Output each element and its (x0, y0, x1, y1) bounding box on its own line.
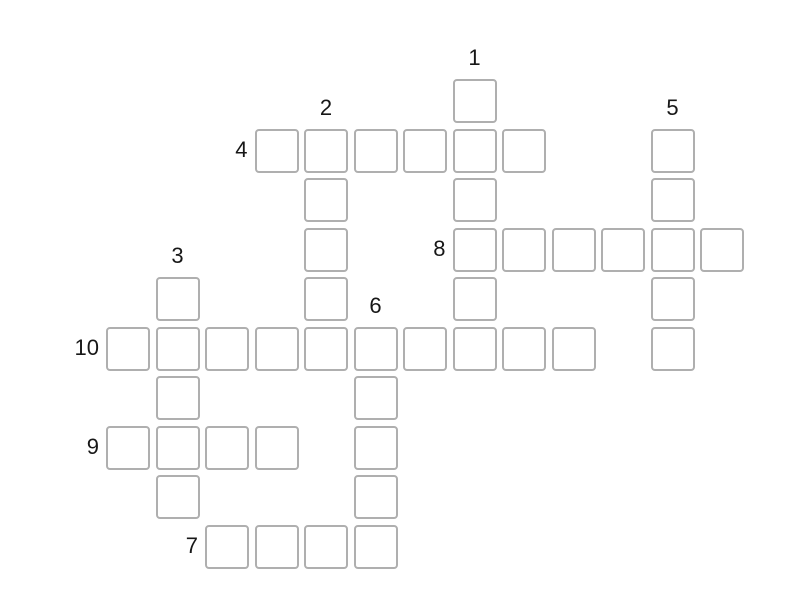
clue-number-label: 9 (59, 435, 99, 459)
crossword-cell[interactable] (453, 79, 497, 123)
crossword-cell[interactable] (304, 228, 348, 272)
crossword-cell[interactable] (354, 327, 398, 371)
crossword-cell[interactable] (156, 426, 200, 470)
crossword-cell[interactable] (502, 228, 546, 272)
crossword-cell[interactable] (403, 327, 447, 371)
crossword-cell[interactable] (651, 327, 695, 371)
crossword-cell[interactable] (304, 277, 348, 321)
crossword-cell[interactable] (453, 277, 497, 321)
crossword-cell[interactable] (502, 129, 546, 173)
crossword-cell[interactable] (651, 178, 695, 222)
crossword-cell[interactable] (304, 178, 348, 222)
clue-number-label: 6 (356, 294, 396, 318)
crossword-cell[interactable] (304, 129, 348, 173)
crossword-cell[interactable] (354, 525, 398, 569)
crossword-cell[interactable] (651, 228, 695, 272)
crossword-cell[interactable] (304, 327, 348, 371)
crossword-cell[interactable] (156, 475, 200, 519)
crossword-cell[interactable] (156, 376, 200, 420)
clue-number-label: 4 (208, 138, 248, 162)
crossword-cell[interactable] (106, 426, 150, 470)
crossword-cell[interactable] (205, 426, 249, 470)
crossword-cell[interactable] (255, 426, 299, 470)
crossword-cell[interactable] (700, 228, 744, 272)
crossword-cell[interactable] (354, 376, 398, 420)
crossword-cell[interactable] (255, 525, 299, 569)
clue-number-label: 7 (158, 534, 198, 558)
crossword-cell[interactable] (205, 525, 249, 569)
crossword-cell[interactable] (354, 475, 398, 519)
crossword-cell[interactable] (156, 327, 200, 371)
clue-number-label: 1 (455, 46, 495, 70)
crossword-cell[interactable] (453, 327, 497, 371)
crossword-cell[interactable] (453, 129, 497, 173)
clue-number-label: 8 (406, 237, 446, 261)
crossword-cell[interactable] (156, 277, 200, 321)
crossword-cell[interactable] (453, 228, 497, 272)
crossword-cell[interactable] (354, 129, 398, 173)
crossword-cell[interactable] (403, 129, 447, 173)
crossword-cell[interactable] (106, 327, 150, 371)
crossword-cell[interactable] (651, 129, 695, 173)
crossword-cell[interactable] (651, 277, 695, 321)
crossword-cell[interactable] (453, 178, 497, 222)
clue-number-label: 5 (653, 96, 693, 120)
clue-number-label: 10 (59, 336, 99, 360)
crossword-grid: 12345678910 (0, 0, 800, 600)
crossword-cell[interactable] (601, 228, 645, 272)
clue-number-label: 2 (306, 96, 346, 120)
clue-number-label: 3 (158, 244, 198, 268)
crossword-cell[interactable] (255, 327, 299, 371)
crossword-cell[interactable] (205, 327, 249, 371)
crossword-cell[interactable] (552, 228, 596, 272)
crossword-cell[interactable] (304, 525, 348, 569)
crossword-cell[interactable] (255, 129, 299, 173)
crossword-cell[interactable] (552, 327, 596, 371)
crossword-cell[interactable] (354, 426, 398, 470)
crossword-cell[interactable] (502, 327, 546, 371)
